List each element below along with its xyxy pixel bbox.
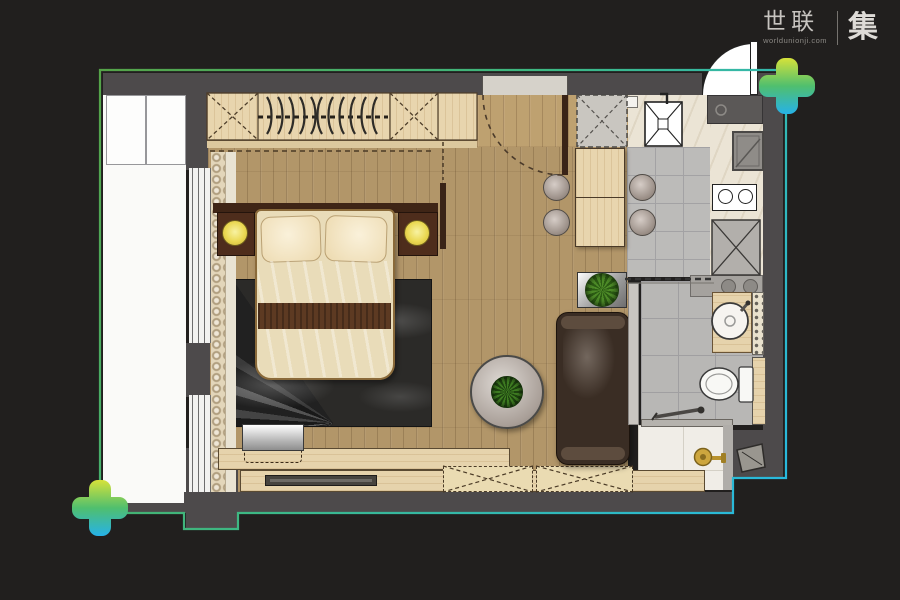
- balcony-cabinet-left: [106, 95, 146, 165]
- entry-threshold: [482, 76, 568, 95]
- wall-pier-left-mid: [186, 343, 210, 397]
- cooktop: [712, 184, 757, 211]
- entry-door-leaf: [750, 41, 758, 95]
- dining-table-divider: [576, 197, 624, 198]
- bed-runner: [258, 303, 391, 329]
- sofa-cushion: [563, 326, 623, 450]
- sofa: [556, 312, 630, 465]
- bedside-lamp-right: [404, 220, 430, 246]
- dining-stool-1: [543, 174, 570, 201]
- interior-door-leaf: [562, 95, 568, 175]
- washbasin-vanity: [712, 292, 752, 353]
- storage-cabinet-dashed-2: [536, 466, 633, 492]
- brand-logo-url: worldunionji.com: [763, 36, 827, 45]
- bedside-lamp-left: [222, 220, 248, 246]
- bathroom-sliding-door: [628, 283, 639, 425]
- wall-right: [763, 73, 783, 478]
- bed-side-screen: [440, 183, 446, 249]
- brand-logo-cn: 世联: [763, 10, 827, 33]
- wall-bottom: [184, 492, 733, 513]
- wardrobe-front-shelf: [207, 140, 477, 148]
- pillow-left: [260, 215, 322, 263]
- coffee-table-plant: [491, 376, 523, 408]
- storage-cabinet-dashed-1: [443, 466, 533, 492]
- shower-side-wall: [723, 425, 733, 490]
- shower-curb: [641, 419, 733, 427]
- wall-pilaster: [626, 96, 638, 108]
- tv-screen-line: [270, 479, 372, 482]
- wall-balcony-bottom: [103, 503, 186, 513]
- countertop-dark: [707, 95, 763, 124]
- bed-frame: [255, 209, 395, 380]
- wall-pier-left-top: [186, 80, 208, 170]
- entry-door-swing: [702, 43, 754, 95]
- bathroom-tall-cabinet: [752, 357, 766, 425]
- wardrobe: [207, 93, 477, 140]
- sofa-armrest-top: [561, 316, 625, 329]
- brand-logo-suffix: 集: [848, 13, 878, 43]
- window-lower: [189, 395, 211, 492]
- dining-table: [575, 148, 625, 247]
- balcony-cabinet-right: [146, 95, 186, 165]
- dining-stool-2: [543, 209, 570, 236]
- planter-plant: [585, 273, 619, 307]
- floorplan-canvas: 世联 worldunionji.com 集: [0, 0, 900, 600]
- brand-logo-divider: [837, 11, 838, 45]
- laptop: [242, 424, 304, 451]
- entry-hall-floor: [477, 95, 628, 147]
- sofa-armrest-bottom: [561, 447, 625, 460]
- burner-left: [718, 189, 733, 204]
- pillow-right: [324, 215, 388, 263]
- wall-tv: [265, 475, 377, 486]
- wall-bath-corner: [733, 430, 763, 478]
- brand-logo: 世联 worldunionji.com 集: [763, 10, 878, 45]
- window-upper: [189, 168, 211, 343]
- burner-right: [738, 189, 753, 204]
- dining-stool-3: [629, 174, 656, 201]
- towel-shelf: [752, 292, 764, 355]
- dining-stool-4: [629, 209, 656, 236]
